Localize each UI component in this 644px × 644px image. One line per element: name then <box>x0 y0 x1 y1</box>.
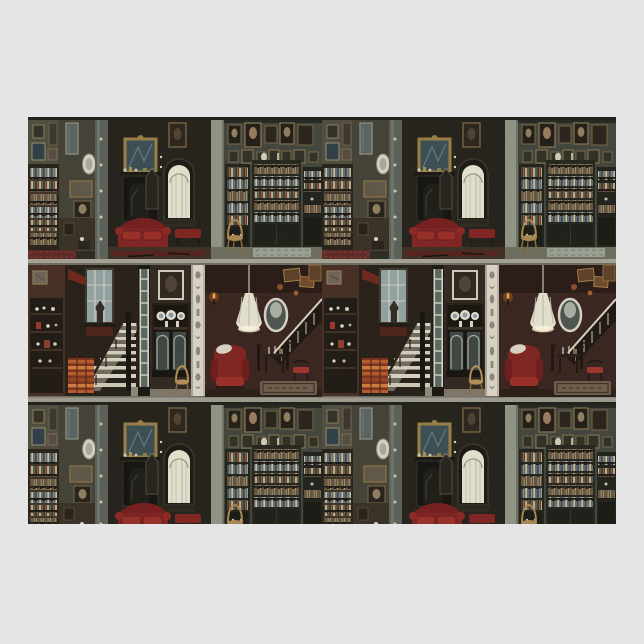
paper-grain-overlay <box>28 117 616 524</box>
artwork-caption: Victorian dollhouse interiors pattern wr… <box>28 524 29 525</box>
wrapping-paper-sheet[interactable]: Victorian dollhouse interiors pattern wr… <box>28 117 616 524</box>
product-photo-background: Victorian dollhouse interiors pattern wr… <box>0 0 644 644</box>
wrapping-paper-artwork <box>28 117 616 524</box>
